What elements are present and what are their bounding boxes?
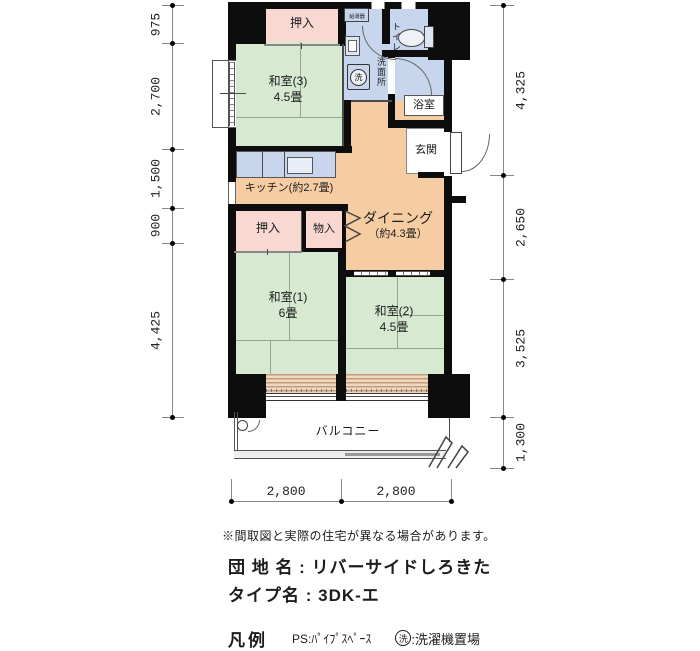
estate-name-value: リバーサイドしろきた bbox=[312, 558, 492, 577]
floorplan-page: { "floorplan": { "rooms": { "oshiire_top… bbox=[0, 0, 700, 650]
estate-name-line: 団 地 名 : リバーサイドしろきた bbox=[228, 553, 491, 578]
legend-title: 凡例 bbox=[228, 626, 268, 651]
type-name-label: タイプ名 : bbox=[228, 586, 318, 605]
info-block: ※間取図と実際の住宅が異なる場合があります。 団 地 名 : リバーサイドしろき… bbox=[0, 0, 700, 650]
disclaimer-text: ※間取図と実際の住宅が異なる場合があります。 bbox=[222, 527, 496, 544]
type-name-value: 3DK-エ bbox=[318, 586, 380, 605]
legend-ps-text: PS:ﾊﾟｲﾌﾟｽﾍﾟｰｽ bbox=[292, 630, 371, 647]
legend-washer-icon: 洗 bbox=[395, 630, 411, 646]
legend-row: 凡例 PS:ﾊﾟｲﾌﾟｽﾍﾟｰｽ 洗 :洗濯機置場 bbox=[228, 627, 588, 649]
legend-washer-text: :洗濯機置場 bbox=[411, 629, 480, 648]
type-name-line: タイプ名 : 3DK-エ bbox=[228, 581, 380, 606]
estate-name-label: 団 地 名 : bbox=[228, 558, 312, 577]
